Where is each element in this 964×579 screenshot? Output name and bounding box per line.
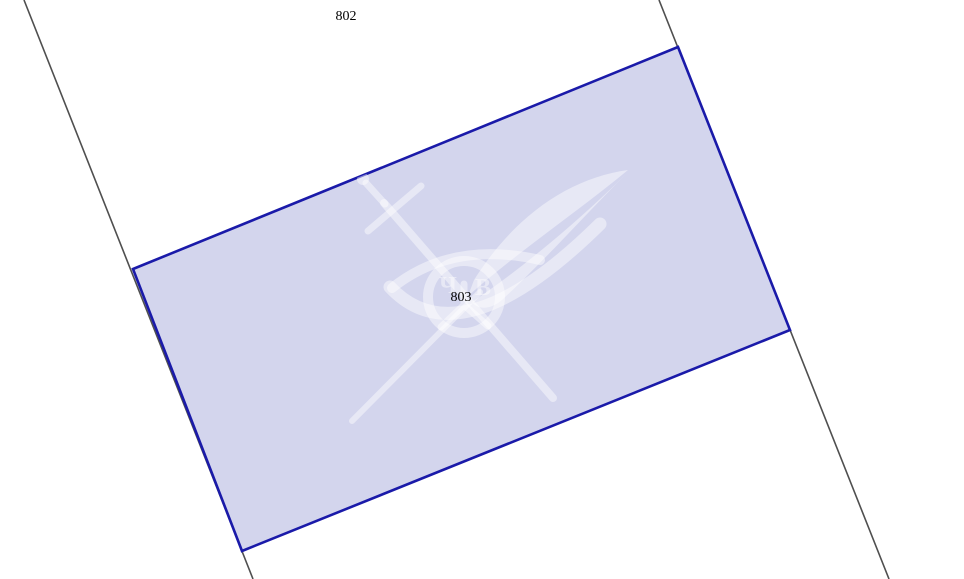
parcel-803-label: 803 xyxy=(451,290,472,306)
map-canvas: Ч В xyxy=(0,0,964,579)
emblem-monogram-right: В xyxy=(475,275,491,301)
map-viewport[interactable]: Ч В 802 803 xyxy=(0,0,964,579)
parcel-802-label: 802 xyxy=(336,9,357,25)
